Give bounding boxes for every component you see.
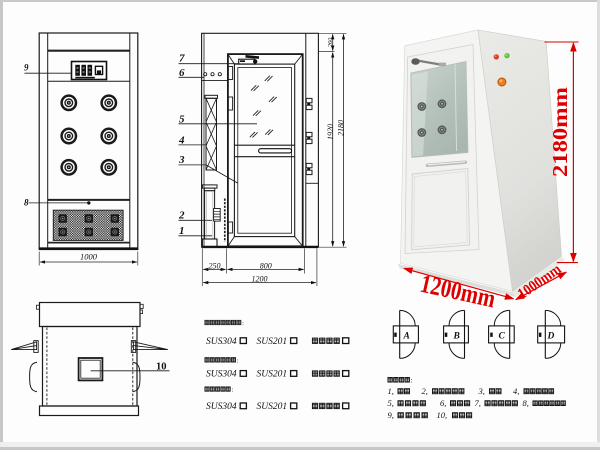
- svg-text:SUS304: SUS304: [206, 370, 237, 380]
- svg-text:6,: 6,: [440, 398, 446, 408]
- svg-text::: :: [411, 377, 413, 385]
- svg-text:2: 2: [178, 210, 185, 222]
- svg-text:8: 8: [24, 198, 29, 208]
- svg-text:250: 250: [209, 261, 221, 270]
- svg-text:7: 7: [179, 53, 185, 65]
- svg-text:1920: 1920: [326, 124, 335, 140]
- svg-text:A: A: [403, 332, 410, 342]
- svg-text:7,: 7,: [475, 398, 481, 408]
- svg-text:SUS201: SUS201: [257, 402, 288, 412]
- svg-text:SUS304: SUS304: [206, 402, 237, 412]
- svg-text:800: 800: [260, 261, 272, 270]
- svg-text:8,: 8,: [523, 398, 529, 408]
- svg-text::: :: [232, 387, 234, 394]
- svg-text::: :: [242, 320, 244, 327]
- svg-text:3: 3: [178, 154, 185, 166]
- svg-text:1200: 1200: [252, 275, 268, 284]
- svg-text:3,: 3,: [478, 386, 485, 396]
- svg-text:10,: 10,: [437, 410, 448, 420]
- svg-text:2180: 2180: [337, 120, 346, 136]
- svg-text:4,: 4,: [513, 386, 519, 396]
- svg-text:5,: 5,: [388, 398, 394, 408]
- svg-text:B: B: [453, 332, 460, 342]
- svg-text:9,: 9,: [388, 410, 394, 420]
- svg-text:SUS201: SUS201: [257, 370, 288, 380]
- svg-text:D: D: [547, 332, 555, 342]
- svg-text::: :: [237, 357, 239, 364]
- svg-text:10: 10: [156, 362, 167, 373]
- svg-text:SUS201: SUS201: [257, 337, 288, 347]
- svg-text:2180mm: 2180mm: [548, 86, 572, 177]
- svg-text:SUS304: SUS304: [206, 337, 237, 347]
- svg-text:1: 1: [179, 225, 185, 237]
- svg-text:9: 9: [24, 63, 29, 73]
- svg-text:C: C: [499, 332, 506, 342]
- svg-text:2,: 2,: [422, 386, 428, 396]
- svg-text:260: 260: [327, 37, 334, 48]
- svg-text:1000: 1000: [80, 252, 98, 262]
- svg-text:1,: 1,: [388, 386, 394, 396]
